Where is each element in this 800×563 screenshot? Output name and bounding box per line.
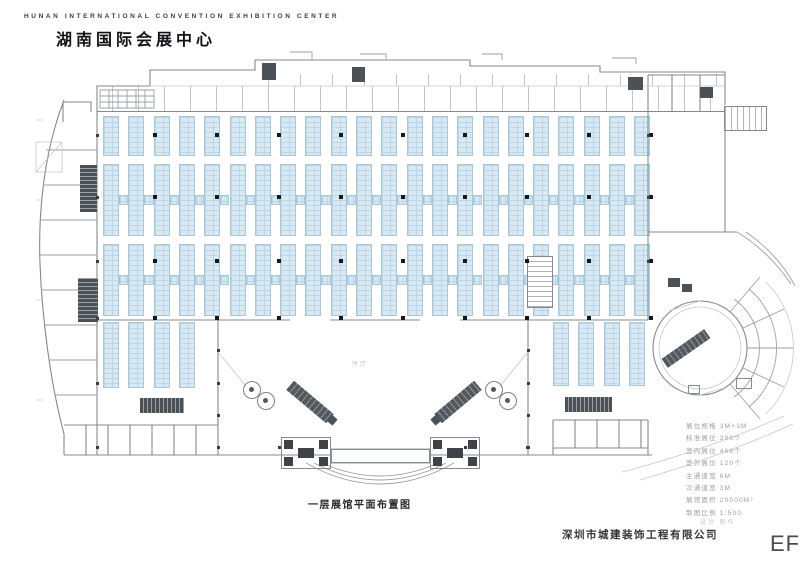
booth-strip [305, 164, 321, 236]
booth-strip [128, 164, 144, 236]
booth-strip [179, 322, 195, 388]
booth-block [625, 195, 634, 205]
booth-block [499, 195, 508, 205]
column-dot [215, 195, 219, 199]
booth-strip [154, 322, 170, 388]
legend-line: 展位规格 3M×3M [686, 421, 796, 433]
west-stair-lower [78, 278, 98, 322]
booth-strip [629, 322, 645, 386]
column-dot [649, 259, 653, 263]
column-dot [463, 316, 467, 320]
room-divider [190, 86, 191, 111]
booth-strip [407, 116, 423, 156]
column-dot [649, 133, 653, 137]
booth-block [372, 275, 381, 285]
booth-strip [457, 164, 473, 236]
wall-column-dot [647, 260, 650, 263]
booth-block [170, 275, 179, 285]
company-note: 设计 制作 [700, 517, 736, 526]
room-divider [346, 86, 347, 111]
column-dot [649, 316, 653, 320]
legend-line: 室内展位 468个 [686, 446, 796, 458]
booth-strip [432, 244, 448, 316]
booth-block [220, 275, 229, 285]
room-divider [716, 74, 717, 86]
room-divider [332, 74, 333, 86]
wall-column-dot [96, 196, 99, 199]
wall-column-dot [96, 317, 99, 320]
booth-strip [128, 322, 144, 388]
legend-line: 展馆面积 20000M² [686, 495, 796, 507]
booth-strip [634, 164, 650, 236]
wall-column-dot [217, 349, 220, 352]
room-divider [606, 86, 607, 111]
booth-strip [204, 164, 220, 236]
booth-strip [356, 164, 372, 236]
wall-column-dot [217, 414, 220, 417]
rotunda-core-block [668, 278, 680, 287]
terrace-room [736, 378, 752, 389]
column-dot [277, 195, 281, 199]
sheet-title-chinese: 湖南国际会展中心 [56, 26, 216, 50]
booth-strip [280, 116, 296, 156]
room-divider [242, 86, 243, 111]
room-divider [588, 74, 589, 86]
booth-block [499, 275, 508, 285]
booth-strip [230, 244, 246, 316]
column-dot [649, 195, 653, 199]
booth-strip [381, 116, 397, 156]
booth-block [473, 275, 482, 285]
legend-line: 标准展位 396个 [686, 433, 796, 445]
wall-column-dot [527, 382, 530, 385]
booth-strip [103, 164, 119, 236]
booth-strip [154, 244, 170, 316]
booth-strip [558, 116, 574, 156]
booth-strip [255, 244, 271, 316]
core-block [352, 67, 365, 82]
lobby-column [257, 392, 275, 410]
column-dot [153, 259, 157, 263]
entrance-pier-left [281, 437, 331, 469]
wall-column-dot [526, 446, 529, 449]
room-divider [268, 86, 269, 111]
booth-strip [255, 164, 271, 236]
booth-block [625, 275, 634, 285]
column-dot [463, 133, 467, 137]
booth-strip [179, 164, 195, 236]
booth-strip [331, 244, 347, 316]
booth-block [296, 275, 305, 285]
booth-strip [508, 244, 524, 316]
room-divider [112, 86, 113, 111]
booth-strip [154, 164, 170, 236]
booth-strip [533, 116, 549, 156]
booth-block [448, 195, 457, 205]
booth-strip [305, 244, 321, 316]
column-dot [153, 316, 157, 320]
room-divider [138, 86, 139, 111]
booth-block [170, 195, 179, 205]
booth-strip [609, 244, 625, 316]
column-dot [587, 259, 591, 263]
lobby-column [499, 392, 517, 410]
column-dot [587, 133, 591, 137]
booth-strip [553, 322, 569, 386]
booth-strip [407, 164, 423, 236]
booth-block [423, 195, 432, 205]
terrace-room [688, 385, 700, 394]
column-dot [339, 259, 343, 263]
left-wing-stair [140, 398, 184, 413]
drawing-caption: 一层展馆平面布置图 [308, 496, 412, 511]
room-divider [428, 74, 429, 86]
booth-strip [204, 244, 220, 316]
watermark-text: EF [770, 531, 800, 557]
booth-block [372, 195, 381, 205]
core-block [700, 87, 713, 98]
booth-strip [128, 244, 144, 316]
room-divider [492, 74, 493, 86]
room-divider [658, 86, 659, 111]
booth-strip [508, 116, 524, 156]
booth-block [397, 275, 406, 285]
booth-block [246, 195, 255, 205]
column-dot [525, 133, 529, 137]
wall-column-dot [527, 414, 530, 417]
room-divider [216, 86, 217, 111]
column-dot [277, 133, 281, 137]
wall-column-dot [96, 134, 99, 137]
legend-line: 次通道宽 3M [686, 483, 796, 495]
room-divider [460, 74, 461, 86]
booth-block [549, 195, 558, 205]
legend-block: 展位规格 3M×3M 标准展位 396个 室内展位 468个 室外展位 120个… [686, 421, 796, 520]
wall-column-dot [647, 134, 650, 137]
booth-block [195, 195, 204, 205]
floor-plan-sheet: HUNAN INTERNATIONAL CONVENTION EXHIBITIO… [0, 0, 800, 563]
booth-strip [356, 244, 372, 316]
sheet-title-english: HUNAN INTERNATIONAL CONVENTION EXHIBITIO… [24, 13, 339, 20]
room-divider [300, 74, 301, 86]
booth-strip [356, 116, 372, 156]
booth-strip [381, 244, 397, 316]
booth-block [600, 275, 609, 285]
room-divider [554, 86, 555, 111]
column-dot [401, 133, 405, 137]
column-dot [401, 195, 405, 199]
room-divider [684, 74, 685, 86]
booth-block [423, 275, 432, 285]
room-divider [556, 74, 557, 86]
wall-column-dot [464, 446, 467, 449]
room-divider [580, 86, 581, 111]
column-dot [277, 259, 281, 263]
room-divider [398, 86, 399, 111]
booth-block [144, 275, 153, 285]
right-wing-stair [565, 397, 612, 412]
column-dot [215, 316, 219, 320]
column-dot [153, 195, 157, 199]
booth-block [347, 275, 356, 285]
booth-strip [604, 322, 620, 386]
column-dot [215, 133, 219, 137]
booth-block [195, 275, 204, 285]
wall-column-dot [96, 446, 99, 449]
main-entrance [331, 449, 430, 463]
column-dot [463, 259, 467, 263]
entrance-pier-right [430, 437, 480, 469]
booth-block [574, 275, 583, 285]
booth-strip [634, 244, 650, 316]
company-name: 深圳市城建装饰工程有限公司 [562, 527, 718, 542]
rotunda-core-block [682, 284, 692, 292]
booth-block [321, 195, 330, 205]
room-divider [684, 86, 685, 111]
booth-block [296, 195, 305, 205]
room-divider [620, 74, 621, 86]
room-divider [524, 74, 525, 86]
room-divider [294, 86, 295, 111]
booth-strip [432, 116, 448, 156]
booth-strip [407, 244, 423, 316]
legend-line: 主通道宽 6M [686, 471, 796, 483]
column-dot [339, 133, 343, 137]
column-dot [277, 316, 281, 320]
booth-strip [609, 116, 625, 156]
room-divider [502, 86, 503, 111]
booth-block [600, 195, 609, 205]
column-dot [587, 195, 591, 199]
booth-strip [578, 322, 594, 386]
room-divider [424, 86, 425, 111]
lobby-label: 序厅 [352, 359, 368, 368]
booth-strip [558, 244, 574, 316]
core-block [628, 77, 643, 90]
room-divider [476, 86, 477, 111]
column-dot [401, 259, 405, 263]
room-divider [652, 74, 653, 86]
wall-column-dot [217, 382, 220, 385]
column-dot [525, 316, 529, 320]
booth-strip [457, 244, 473, 316]
booth-block [246, 275, 255, 285]
booth-strip [103, 244, 119, 316]
booth-strip [230, 164, 246, 236]
booth-strip [483, 164, 499, 236]
booth-strip [103, 116, 119, 156]
room-divider [528, 86, 529, 111]
column-dot [525, 259, 529, 263]
core-block [262, 63, 276, 80]
booth-strip [128, 116, 144, 156]
booth-strip [483, 116, 499, 156]
column-dot [339, 316, 343, 320]
room-divider [164, 86, 165, 111]
booth-block [347, 195, 356, 205]
booth-block [448, 275, 457, 285]
booth-strip [584, 244, 600, 316]
wall-column-dot [217, 446, 220, 449]
booth-strip [305, 116, 321, 156]
room-divider [320, 86, 321, 111]
booth-block [271, 275, 280, 285]
booth-strip [255, 116, 271, 156]
wall-column-dot [96, 382, 99, 385]
room-divider [450, 86, 451, 111]
wall-column-dot [278, 446, 281, 449]
room-divider [396, 74, 397, 86]
booth-block [220, 195, 229, 205]
booth-strip [179, 244, 195, 316]
column-dot [215, 259, 219, 263]
hall-stairwell [527, 256, 553, 308]
column-dot [525, 195, 529, 199]
booth-strip [331, 164, 347, 236]
column-dot [587, 316, 591, 320]
booth-strip [103, 322, 119, 388]
wall-column-dot [527, 349, 530, 352]
exhibition-hall-plan [0, 0, 800, 563]
booth-strip [609, 164, 625, 236]
column-dot [339, 195, 343, 199]
booth-strip [381, 164, 397, 236]
column-dot [463, 195, 467, 199]
wall-column-dot [96, 260, 99, 263]
booth-strip [280, 164, 296, 236]
column-dot [401, 316, 405, 320]
west-stair-upper [80, 165, 97, 212]
booth-strip [483, 244, 499, 316]
wall-column-dot [647, 196, 650, 199]
booth-strip [508, 164, 524, 236]
booth-block [119, 275, 128, 285]
booth-strip [280, 244, 296, 316]
booth-strip [230, 116, 246, 156]
booth-strip [533, 164, 549, 236]
room-divider [372, 86, 373, 111]
northeast-stair [724, 106, 767, 131]
legend-line: 室外展位 120个 [686, 458, 796, 470]
booth-block [119, 195, 128, 205]
column-dot [153, 133, 157, 137]
booth-block [321, 275, 330, 285]
booth-strip [432, 164, 448, 236]
booth-strip [558, 164, 574, 236]
booth-block [574, 195, 583, 205]
booth-block [473, 195, 482, 205]
booth-strip [179, 116, 195, 156]
booth-strip [584, 164, 600, 236]
